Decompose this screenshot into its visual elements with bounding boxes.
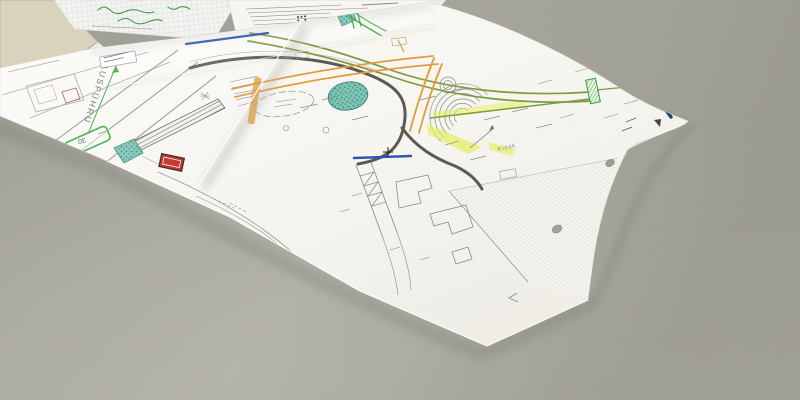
scene-canvas: AUSFÜHRU 30 [0,0,800,400]
photo-of-site-plan-on-desk: AUSFÜHRU 30 [0,0,800,400]
